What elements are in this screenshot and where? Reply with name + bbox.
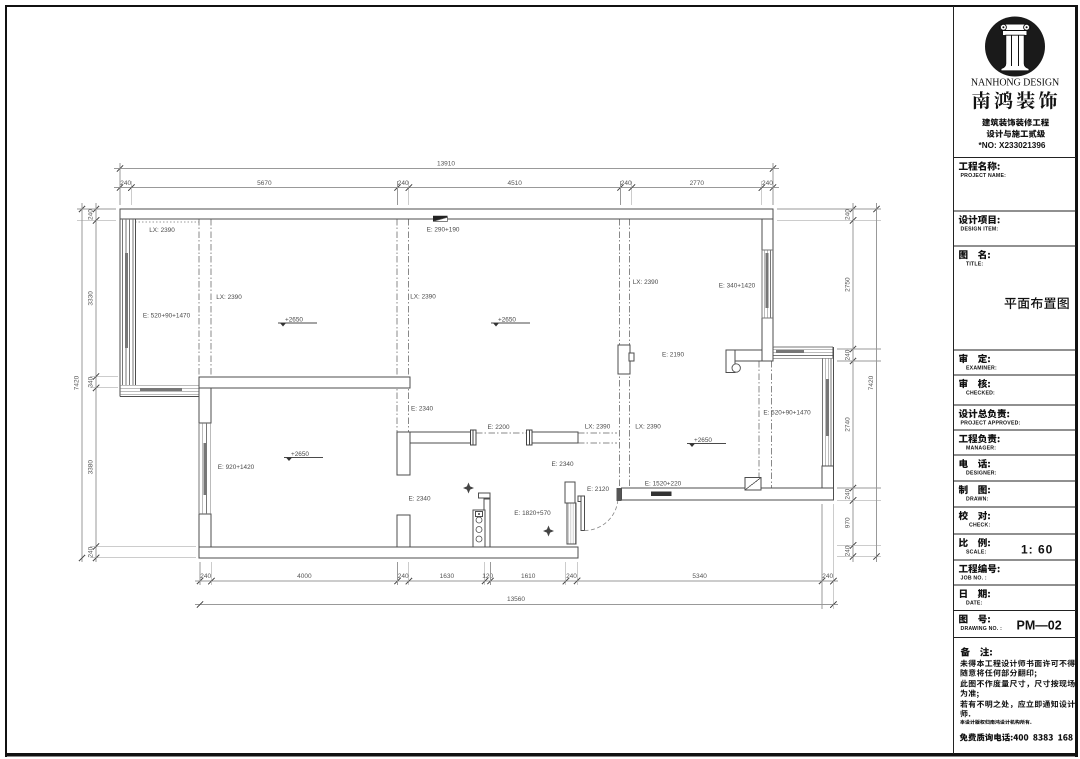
svg-text:LX: 2390: LX: 2390 bbox=[216, 294, 242, 301]
svg-text:7420: 7420 bbox=[74, 375, 81, 390]
svg-text:E: 2120: E: 2120 bbox=[587, 486, 609, 493]
svg-text:DESIGN ITEM:: DESIGN ITEM: bbox=[961, 227, 999, 233]
svg-text:340: 340 bbox=[88, 376, 95, 387]
svg-text:DESIGNER:: DESIGNER: bbox=[966, 471, 997, 477]
svg-text:EXAMINER:: EXAMINER: bbox=[966, 366, 997, 372]
svg-text:LX: 2390: LX: 2390 bbox=[585, 424, 611, 431]
svg-text:13560: 13560 bbox=[507, 596, 525, 603]
svg-text:2740: 2740 bbox=[845, 417, 852, 432]
svg-text:+2650: +2650 bbox=[694, 437, 712, 444]
svg-text:1: 60: 1: 60 bbox=[1021, 543, 1053, 557]
svg-text:3330: 3330 bbox=[88, 291, 95, 306]
svg-text:240: 240 bbox=[845, 349, 852, 360]
svg-text:240: 240 bbox=[845, 209, 852, 220]
svg-text:+2650: +2650 bbox=[291, 451, 309, 458]
svg-text:7420: 7420 bbox=[868, 375, 875, 390]
svg-text:1610: 1610 bbox=[521, 573, 536, 580]
svg-text:TITLE:: TITLE: bbox=[966, 262, 983, 268]
svg-text:E: 2340: E: 2340 bbox=[551, 461, 573, 468]
svg-text:240: 240 bbox=[762, 180, 773, 187]
svg-text:13910: 13910 bbox=[437, 161, 455, 168]
svg-text:PROJECT APPROVED:: PROJECT APPROVED: bbox=[961, 421, 1021, 427]
svg-text:240: 240 bbox=[845, 545, 852, 556]
svg-text:3380: 3380 bbox=[88, 460, 95, 475]
svg-text:DRAWING NO. :: DRAWING NO. : bbox=[961, 626, 1003, 632]
svg-text:E: 2340: E: 2340 bbox=[409, 496, 431, 503]
svg-text:240: 240 bbox=[398, 180, 409, 187]
svg-text:5670: 5670 bbox=[257, 180, 272, 187]
svg-text:E: 520+90+1470: E: 520+90+1470 bbox=[143, 313, 191, 320]
svg-text:E: 2200: E: 2200 bbox=[487, 424, 509, 431]
svg-text:240: 240 bbox=[845, 488, 852, 499]
svg-text:240: 240 bbox=[822, 573, 833, 580]
svg-text:E: 1820+570: E: 1820+570 bbox=[514, 510, 551, 517]
svg-text:NANHONG DESIGN: NANHONG DESIGN bbox=[971, 78, 1059, 89]
svg-text:+2650: +2650 bbox=[285, 317, 303, 324]
svg-text:4510: 4510 bbox=[507, 180, 522, 187]
svg-text:*NO: X233021396: *NO: X233021396 bbox=[979, 141, 1046, 150]
svg-text:CHECK:: CHECK: bbox=[969, 523, 990, 529]
svg-text:CHECKED:: CHECKED: bbox=[966, 391, 995, 397]
svg-text:1630: 1630 bbox=[440, 573, 455, 580]
svg-text:DATE:: DATE: bbox=[966, 601, 983, 607]
svg-text:2750: 2750 bbox=[845, 277, 852, 292]
svg-text:PROJECT NAME:: PROJECT NAME: bbox=[961, 173, 1007, 179]
svg-text:E: 520+90+1470: E: 520+90+1470 bbox=[763, 410, 811, 417]
svg-text:240: 240 bbox=[621, 180, 632, 187]
svg-text:E: 340+1420: E: 340+1420 bbox=[719, 283, 756, 290]
svg-text:LX: 2390: LX: 2390 bbox=[633, 279, 659, 286]
svg-text:240: 240 bbox=[398, 573, 409, 580]
svg-text:2770: 2770 bbox=[690, 180, 705, 187]
svg-text:+2650: +2650 bbox=[498, 317, 516, 324]
svg-text:240: 240 bbox=[566, 573, 577, 580]
svg-text:970: 970 bbox=[845, 517, 852, 528]
svg-text:JOB NO. :: JOB NO. : bbox=[961, 576, 987, 582]
svg-text:E: 2190: E: 2190 bbox=[662, 352, 684, 359]
svg-text:LX: 2390: LX: 2390 bbox=[635, 424, 661, 431]
svg-text:LX: 2390: LX: 2390 bbox=[410, 294, 436, 301]
svg-text:DRAWN:: DRAWN: bbox=[966, 497, 989, 503]
svg-text:LX: 2390: LX: 2390 bbox=[149, 227, 175, 234]
svg-text:MANAGER:: MANAGER: bbox=[966, 446, 996, 452]
svg-text:E: 290+190: E: 290+190 bbox=[427, 227, 460, 234]
svg-text:120: 120 bbox=[482, 573, 493, 580]
svg-text:E: 2340: E: 2340 bbox=[411, 406, 433, 413]
svg-text:E: 920+1420: E: 920+1420 bbox=[218, 464, 255, 471]
svg-text:4000: 4000 bbox=[297, 573, 312, 580]
svg-text:E: 1520+220: E: 1520+220 bbox=[645, 481, 682, 488]
svg-text:SCALE:: SCALE: bbox=[966, 550, 987, 556]
svg-text:240: 240 bbox=[88, 209, 95, 220]
svg-text:240: 240 bbox=[88, 546, 95, 557]
svg-text:PM—02: PM—02 bbox=[1017, 619, 1062, 633]
svg-text:5340: 5340 bbox=[692, 573, 707, 580]
svg-text:240: 240 bbox=[120, 180, 131, 187]
svg-text:240: 240 bbox=[200, 573, 211, 580]
